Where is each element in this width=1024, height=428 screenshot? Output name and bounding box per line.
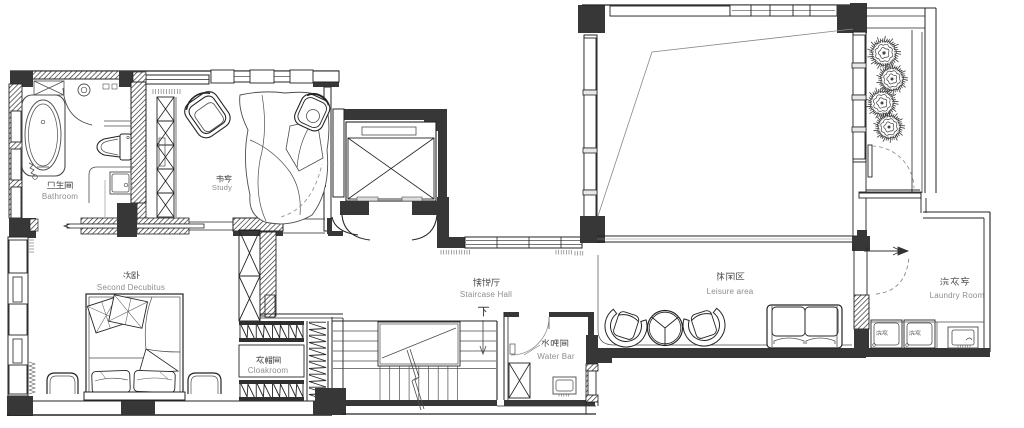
svg-text:Leisure area: Leisure area — [707, 287, 754, 296]
svg-text:Staircase Hall: Staircase Hall — [460, 290, 512, 299]
svg-text:Cloakroom: Cloakroom — [248, 366, 289, 375]
svg-text:Second Decubitus: Second Decubitus — [97, 283, 165, 292]
svg-text:Water Bar: Water Bar — [537, 352, 575, 361]
svg-text:Laundry Room: Laundry Room — [930, 291, 985, 300]
svg-text:Study: Study — [212, 183, 232, 192]
svg-text:Bathroom: Bathroom — [42, 192, 78, 201]
